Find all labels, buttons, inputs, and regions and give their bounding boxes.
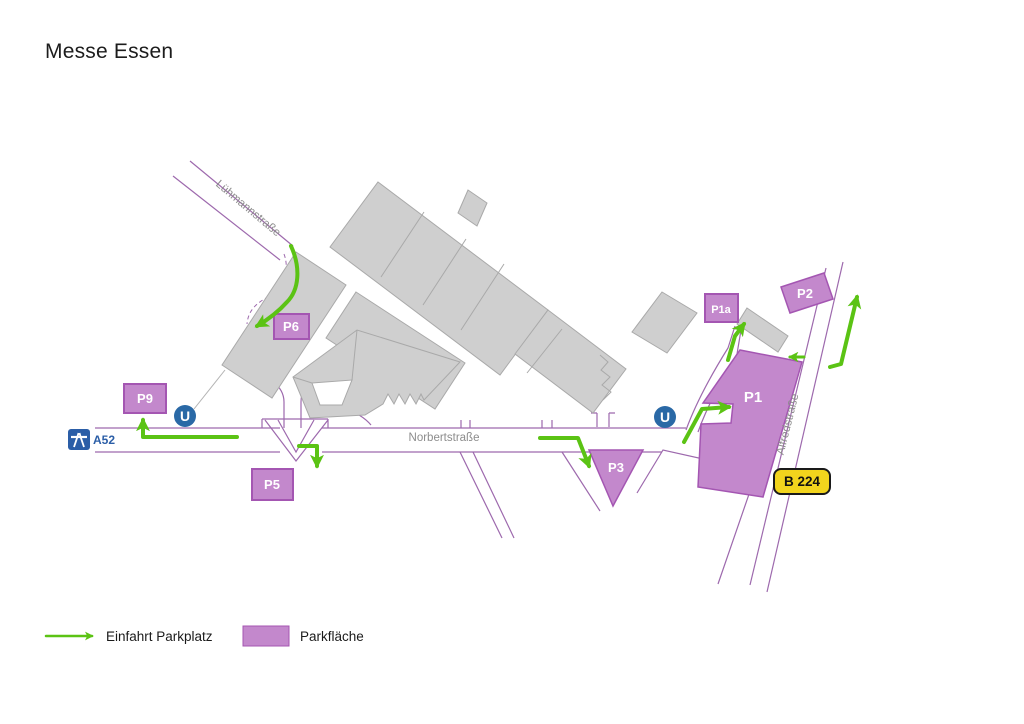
footpath-u-station bbox=[194, 370, 225, 409]
autobahn-badge: A52 bbox=[68, 429, 115, 450]
lane-brackets bbox=[591, 413, 615, 427]
bundesstrasse-number: B 224 bbox=[784, 474, 821, 489]
building-small-north bbox=[458, 190, 487, 226]
subway-letter: U bbox=[180, 408, 190, 424]
legend: Einfahrt Parkplatz Parkfläche bbox=[46, 626, 364, 646]
subway-station-east: U bbox=[654, 406, 676, 428]
legend-parking-label: Parkfläche bbox=[300, 629, 364, 644]
street-label-norbertstrasse: Norbertstraße bbox=[409, 432, 480, 444]
parking-label-p9: P9 bbox=[137, 391, 153, 406]
crossing-ticks bbox=[461, 420, 552, 428]
map-canvas: Messe Essen bbox=[0, 0, 1024, 724]
map-page: Messe Essen bbox=[0, 0, 1024, 724]
ramp-top-edge bbox=[262, 419, 328, 428]
parking-label-p1: P1 bbox=[744, 389, 762, 406]
parking-area-p3 bbox=[589, 450, 643, 506]
autobahn-number: A52 bbox=[93, 433, 115, 447]
parking-label-p2: P2 bbox=[797, 286, 813, 301]
entrance-arrow-p5 bbox=[299, 446, 317, 466]
entrance-arrow-alfredstrasse bbox=[830, 297, 857, 367]
page-title: Messe Essen bbox=[45, 40, 173, 63]
subway-station-west: U bbox=[174, 405, 196, 427]
building-near-p1a bbox=[632, 292, 697, 353]
parking-label-p3: P3 bbox=[608, 460, 624, 475]
bundesstrasse-badge: B 224 bbox=[774, 469, 830, 494]
motorway-icon bbox=[68, 429, 90, 450]
street-label-luhmannstrasse: Lühmannstraße bbox=[213, 178, 282, 239]
legend-entrance-label: Einfahrt Parkplatz bbox=[106, 629, 213, 644]
subway-letter: U bbox=[660, 409, 670, 425]
parking-label-p5: P5 bbox=[264, 477, 280, 492]
building-between-p1a-p2 bbox=[737, 308, 788, 352]
parking-label-p1a: P1a bbox=[711, 304, 731, 316]
side-street-southwest bbox=[460, 452, 514, 538]
exhibition-halls bbox=[222, 182, 788, 418]
parking-label-p6: P6 bbox=[283, 319, 299, 334]
legend-parking-swatch bbox=[243, 626, 289, 646]
